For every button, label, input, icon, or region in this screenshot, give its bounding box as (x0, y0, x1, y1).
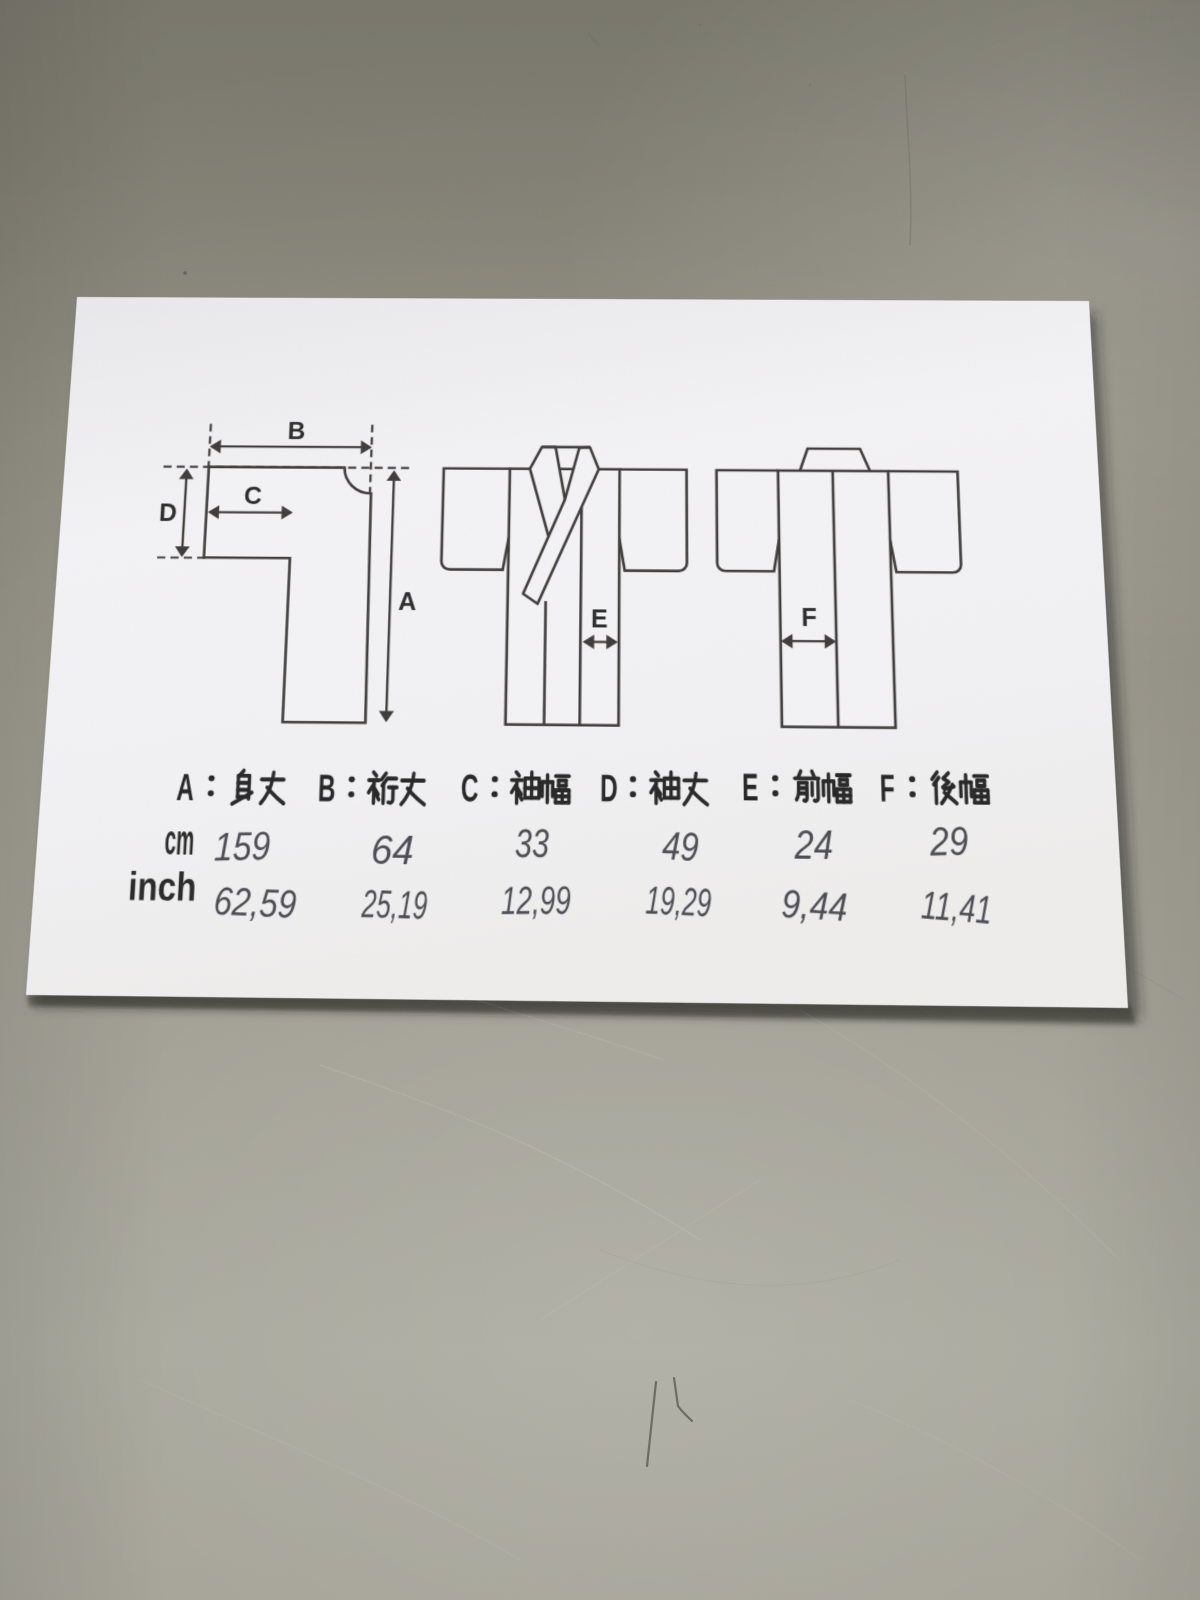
svg-text:E: E (742, 766, 759, 809)
svg-text:29: 29 (927, 819, 970, 865)
svg-text:49: 49 (661, 823, 699, 870)
svg-text:F: F (879, 767, 895, 810)
svg-text:62,59: 62,59 (212, 880, 298, 927)
svg-text:D: D (158, 499, 177, 527)
svg-text:F: F (801, 603, 817, 632)
svg-text:9,44: 9,44 (781, 883, 848, 930)
svg-text:E: E (591, 604, 608, 633)
svg-text:C: C (460, 767, 478, 809)
svg-text:33: 33 (515, 821, 549, 866)
svg-text:B: B (287, 417, 306, 444)
svg-text:inch: inch (127, 864, 198, 910)
svg-text:cm: cm (164, 817, 196, 865)
svg-text:11,41: 11,41 (920, 884, 992, 933)
svg-text:25,19: 25,19 (360, 883, 428, 928)
svg-text:B: B (317, 767, 336, 809)
svg-text:64: 64 (370, 828, 414, 873)
svg-text:159: 159 (214, 823, 271, 869)
svg-text:D: D (600, 767, 618, 810)
svg-text:A: A (398, 587, 417, 615)
svg-text:C: C (243, 482, 262, 510)
svg-text:19,29: 19,29 (645, 879, 712, 925)
svg-text:24: 24 (793, 823, 834, 868)
svg-text:12,99: 12,99 (501, 880, 571, 924)
svg-text:A: A (176, 766, 196, 808)
